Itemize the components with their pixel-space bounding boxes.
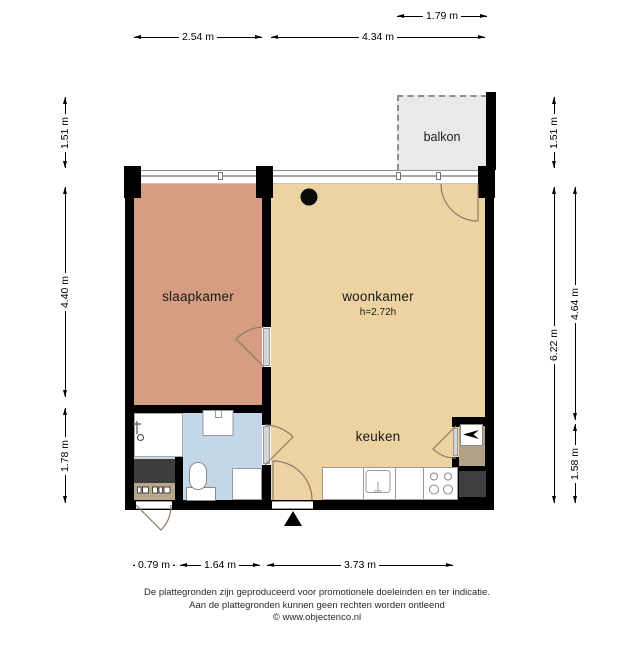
entrance-arrow [284,511,302,526]
window-mullion [218,172,223,180]
wall-balkon-right [486,92,496,170]
wall-pillar-right [478,166,495,198]
shower-area [134,413,183,457]
kitchen-counter [322,467,458,500]
meterkast-area [134,483,175,500]
window-band [134,170,485,184]
copyright: © www.objectenco.nl [0,612,634,625]
wall-divider-lower [262,367,271,405]
window-glazing-line [134,175,485,177]
wall-badkamer-right-lower [262,465,271,500]
floorplan-canvas: balkon slaapkamer woonkamer h=2.72h keuk… [0,0,634,661]
wall-divider-upper [262,184,271,327]
threshold-meterkast [136,501,172,509]
label-slaapkamer: slaapkamer [134,289,262,304]
door-panel-slaapkamer [263,328,270,366]
label-keuken: keuken [271,429,485,444]
wall-right [485,168,494,510]
wall-badkamer-right-upper [262,413,271,425]
label-woonkamer-height: h=2.72h [271,307,485,318]
shaft-box [459,471,486,497]
disclaimer-line2: Aan de plattegronden kunnen geen rechten… [0,600,634,613]
window-inner-line [134,183,485,184]
counter-divider [423,468,424,499]
window-mullion [396,172,401,180]
counter-divider [363,468,364,499]
label-woonkamer: woonkamer [271,289,485,304]
disclaimer-line1: De plattegronden zijn geproduceerd voor … [0,587,634,600]
wall-closet [175,457,183,500]
closet-dark-box [134,459,175,483]
threshold-voordeur [272,501,313,509]
wall-pillar-left [124,166,141,198]
wall-left [125,168,134,510]
wall-alcove-stub [452,417,459,427]
door-panel-badkamer [263,426,270,464]
disclaimer: De plattegronden zijn geproduceerd voor … [0,587,634,625]
wall-slaapkamer-bottom [125,405,271,413]
window-mullion [436,172,441,180]
counter-divider [395,468,396,499]
label-balkon: balkon [397,130,487,144]
